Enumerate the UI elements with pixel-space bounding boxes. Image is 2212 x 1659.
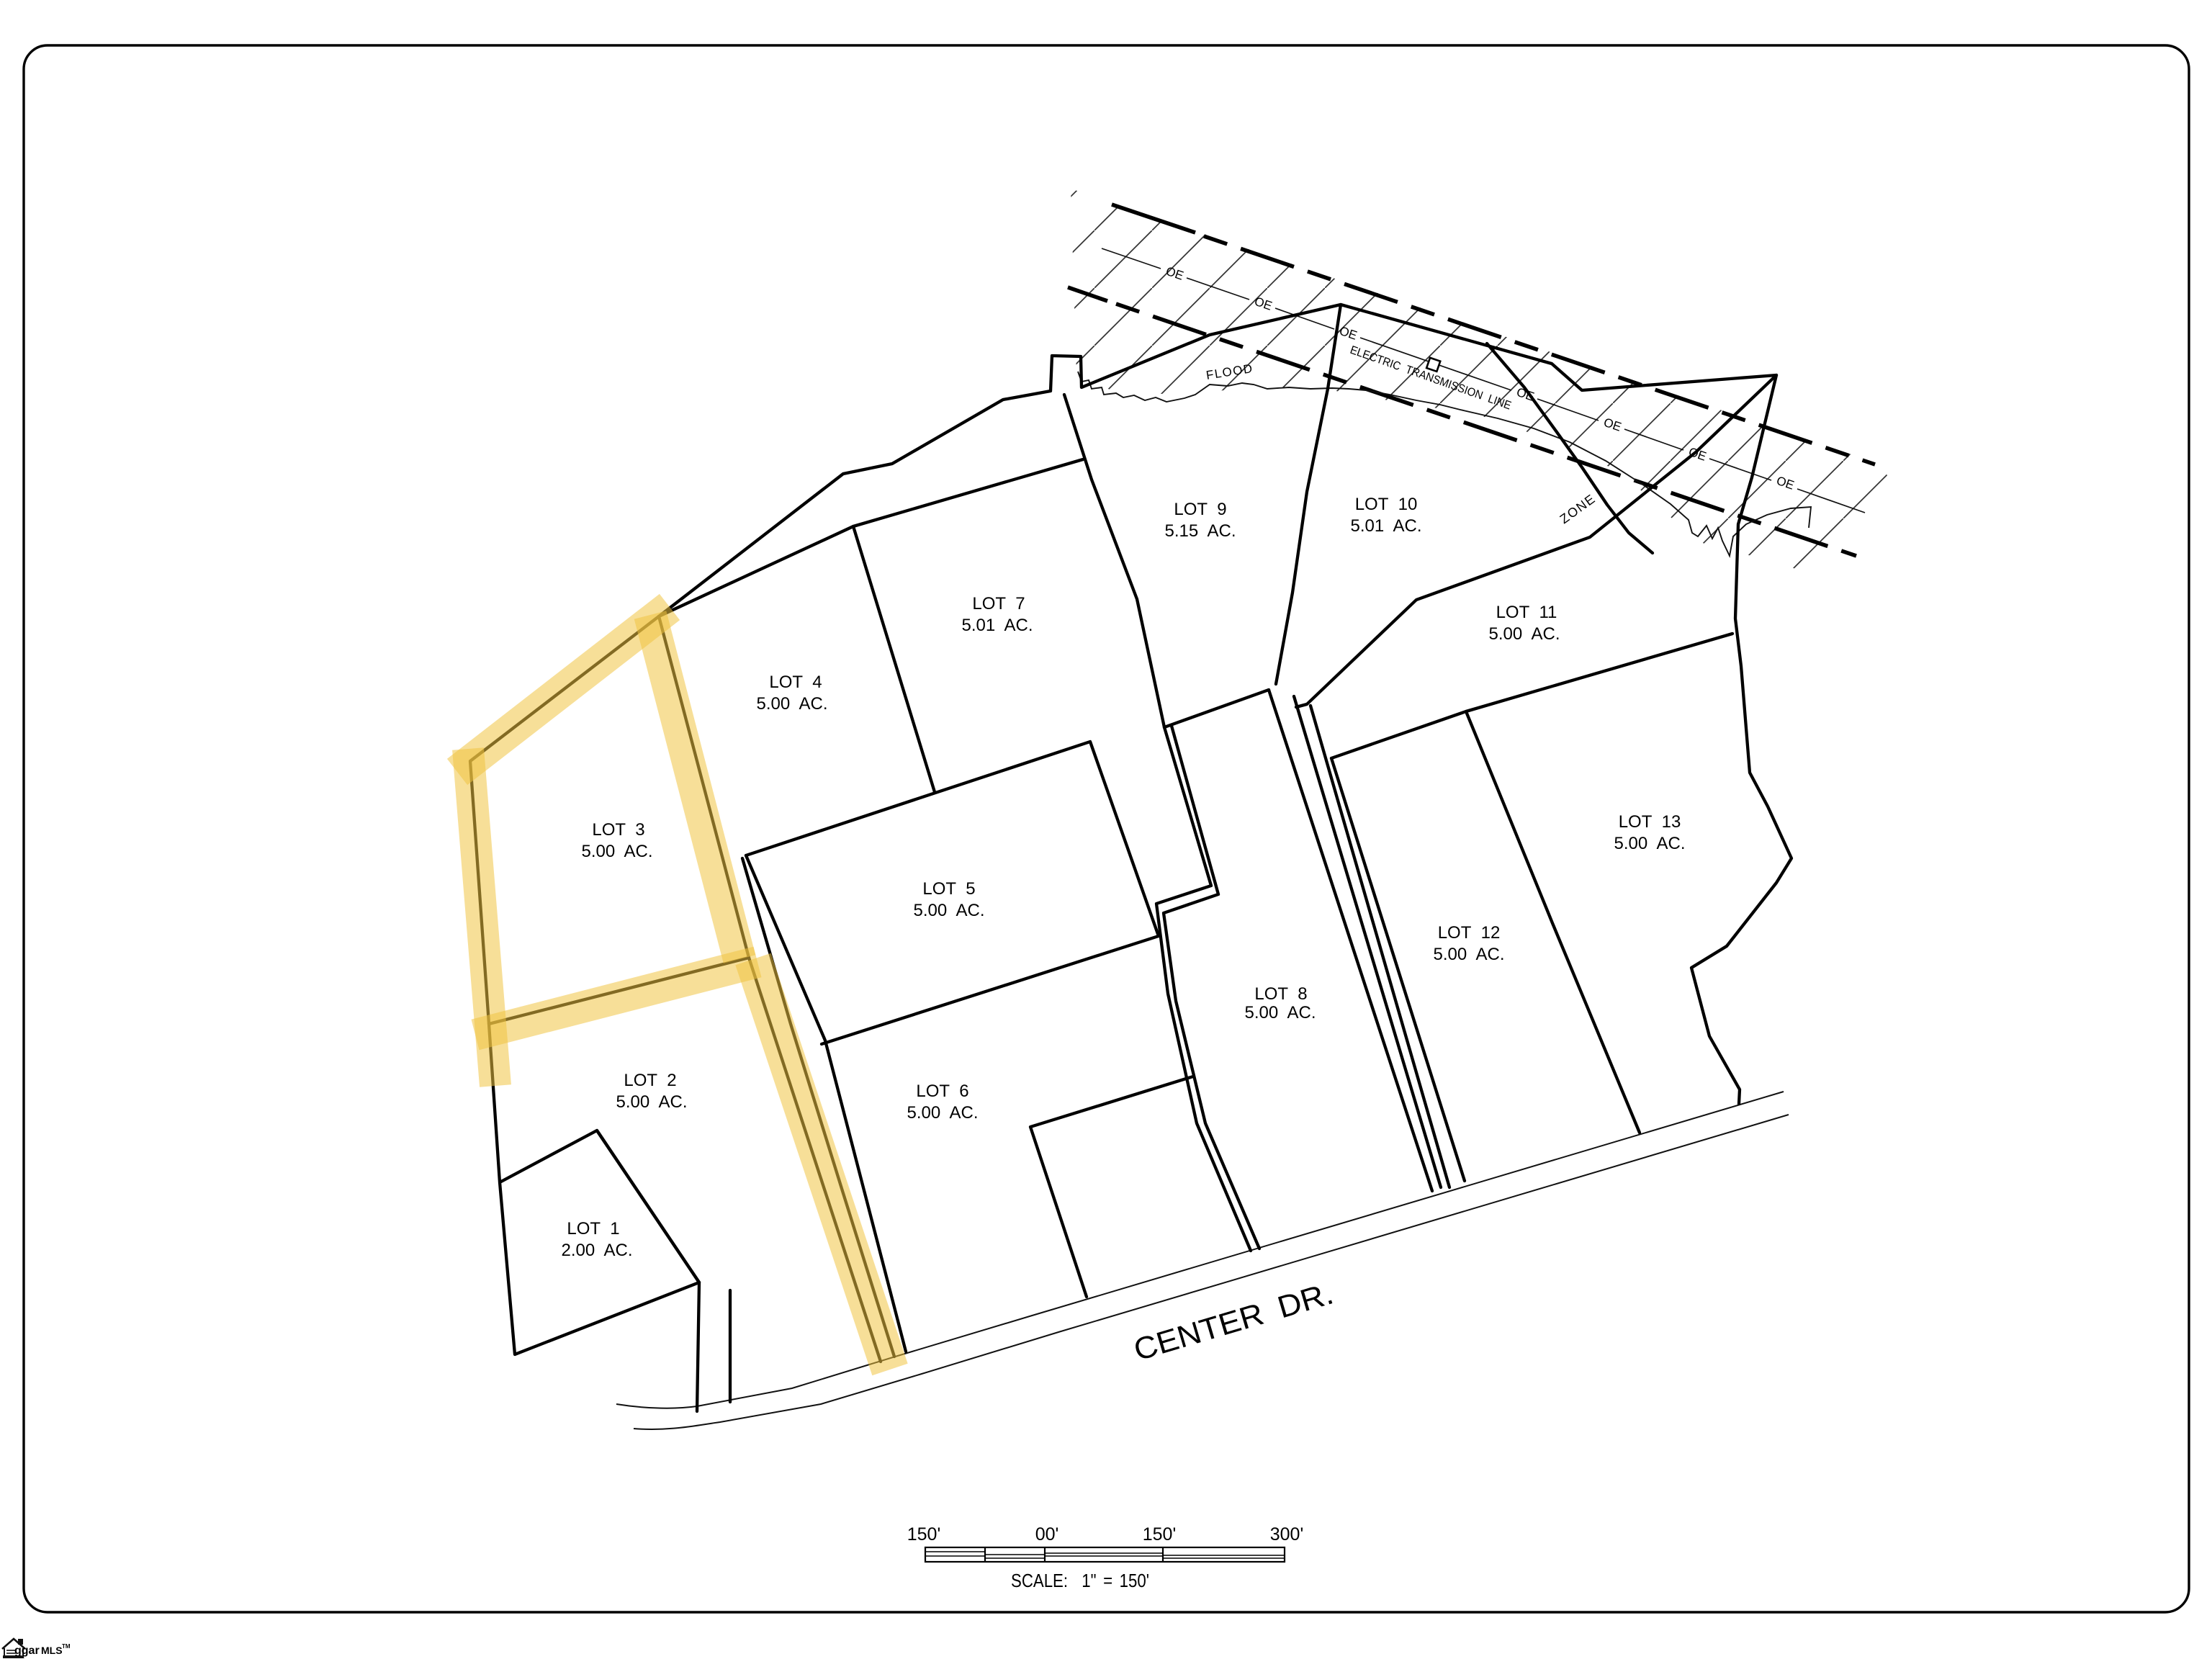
- svg-text:LOT 12: LOT 12: [1438, 923, 1501, 943]
- svg-text:LOT 9: LOT 9: [1174, 500, 1226, 519]
- svg-text:SCALE: 1" = 150': SCALE: 1" = 150': [1011, 1570, 1149, 1591]
- svg-text:LOT 10: LOT 10: [1355, 495, 1418, 514]
- svg-text:5.00 AC.: 5.00 AC.: [1614, 834, 1685, 853]
- svg-text:150': 150': [907, 1524, 940, 1545]
- svg-text:LOT 3: LOT 3: [592, 820, 644, 840]
- svg-text:TM: TM: [62, 1643, 71, 1650]
- svg-text:LOT 8: LOT 8: [1254, 984, 1307, 1004]
- svg-text:2.00 AC.: 2.00 AC.: [561, 1241, 632, 1260]
- svg-text:ggar: ggar: [14, 1645, 40, 1657]
- svg-text:300': 300': [1270, 1524, 1303, 1545]
- svg-text:5.01 AC.: 5.01 AC.: [1350, 516, 1421, 536]
- svg-text:5.00 AC.: 5.00 AC.: [1244, 1003, 1316, 1022]
- svg-text:LOT 11: LOT 11: [1496, 603, 1557, 622]
- svg-text:5.00 AC.: 5.00 AC.: [913, 901, 984, 920]
- svg-text:5.00 AC.: 5.00 AC.: [1433, 945, 1504, 964]
- svg-text:LOT 7: LOT 7: [972, 594, 1025, 613]
- svg-text:LOT 1: LOT 1: [567, 1219, 619, 1238]
- svg-text:00': 00': [1035, 1524, 1059, 1545]
- svg-text:LOT 4: LOT 4: [769, 673, 822, 692]
- svg-text:5.00 AC.: 5.00 AC.: [756, 694, 827, 714]
- svg-text:5.00 AC.: 5.00 AC.: [1488, 624, 1560, 644]
- svg-text:LOT 6: LOT 6: [916, 1082, 968, 1101]
- svg-text:5.01 AC.: 5.01 AC.: [961, 616, 1033, 635]
- svg-text:5.00 AC.: 5.00 AC.: [907, 1103, 978, 1123]
- svg-text:5.15 AC.: 5.15 AC.: [1164, 521, 1236, 541]
- svg-text:LOT 13: LOT 13: [1619, 812, 1681, 832]
- svg-text:150': 150': [1143, 1524, 1176, 1545]
- svg-text:5.00 AC.: 5.00 AC.: [581, 842, 652, 861]
- svg-text:LOT 2: LOT 2: [624, 1071, 676, 1090]
- svg-text:LOT 5: LOT 5: [922, 879, 975, 899]
- svg-text:5.00 AC.: 5.00 AC.: [616, 1092, 687, 1112]
- svg-text:MLS: MLS: [41, 1645, 63, 1656]
